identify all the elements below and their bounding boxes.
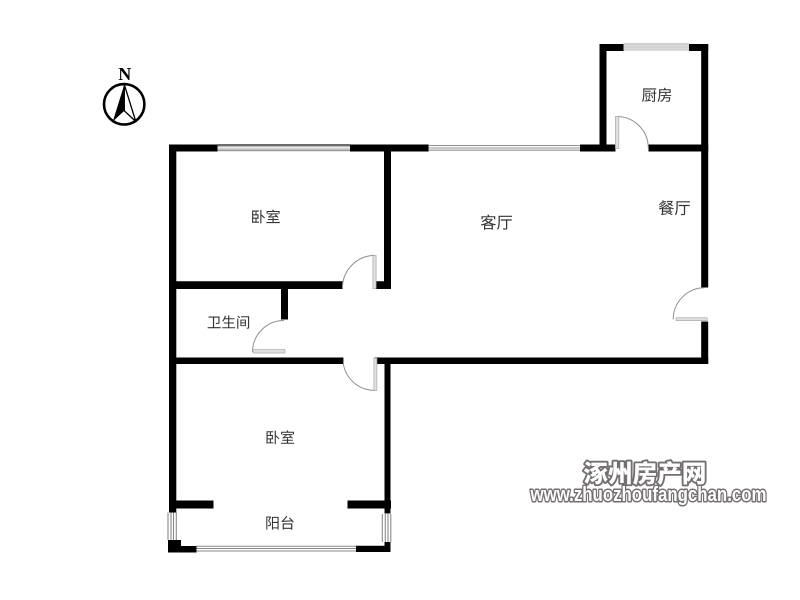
svg-text:www.zhuozhoufangchan.com: www.zhuozhoufangchan.com xyxy=(530,483,767,506)
svg-text:N: N xyxy=(118,64,131,84)
